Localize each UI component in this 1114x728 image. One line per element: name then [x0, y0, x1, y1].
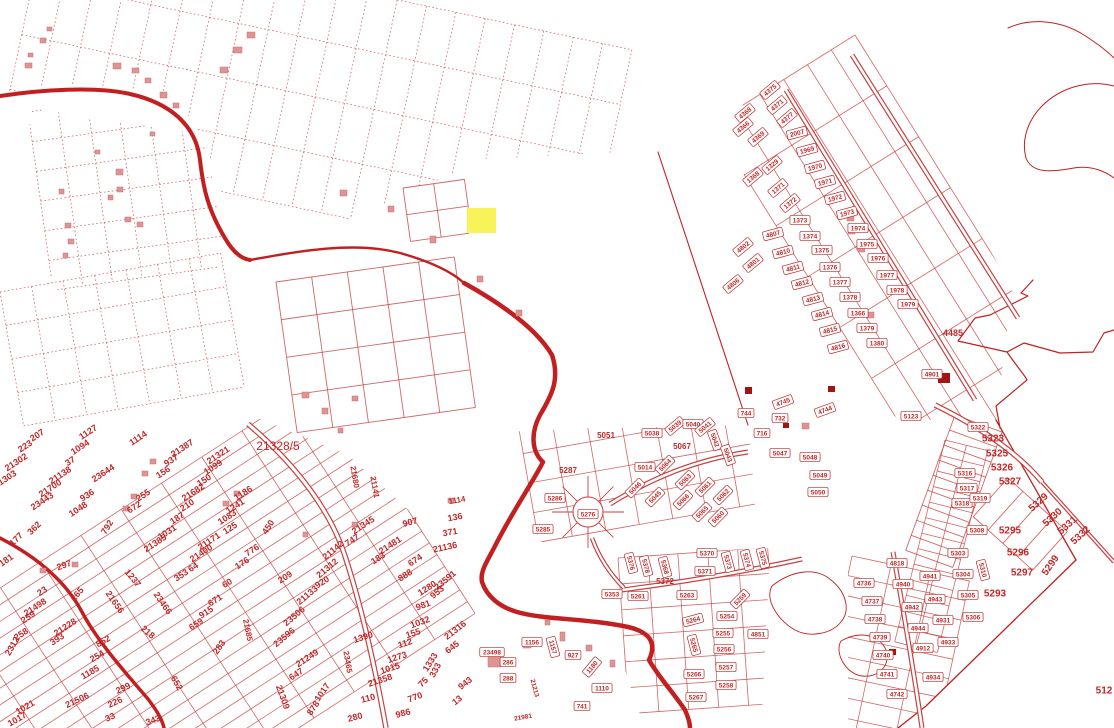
parcel-number: 5038 [645, 430, 660, 437]
cadastral-map[interactable]: 21328/5207223213022130311271094372113821… [0, 0, 1114, 728]
parcel-label-boxed: 1379 [857, 323, 877, 332]
parcel-number: 5372 [656, 577, 674, 586]
parcel-number: 5287 [559, 466, 577, 475]
parcel-number: 21249 [294, 647, 320, 669]
parcel-label-boxed: 1373 [790, 215, 810, 224]
building [338, 428, 343, 433]
parcel-number: 226 [106, 694, 124, 709]
parcel-label: 652 [169, 674, 185, 692]
parcel-label-boxed: 4912 [913, 643, 933, 652]
parcel-number: 288 [503, 675, 514, 682]
parcel-label-boxed: 927 [565, 650, 581, 659]
building [783, 423, 789, 428]
parcel-label: 254 [88, 648, 106, 664]
building [117, 187, 123, 192]
parcel-label: 23596 [271, 625, 297, 649]
parcel-number: 4931 [936, 617, 951, 624]
building [745, 387, 752, 394]
parcel-number: 181 [0, 552, 15, 569]
parcel-number: 1376 [823, 264, 838, 271]
parcel-label-boxed: 1371 [767, 178, 788, 198]
parcel-label: 1114 [448, 494, 467, 506]
parcel-label-boxed: 4807 [762, 227, 784, 241]
parcel-number: 23465 [341, 650, 354, 674]
parcel-label-boxed: 5047 [770, 448, 790, 457]
parcel-label: 5296 [1007, 548, 1030, 559]
parcel-number: 5285 [536, 526, 551, 533]
parcel-label-boxed: 5062 [713, 485, 734, 506]
parcel-number: 21506 [64, 690, 91, 710]
parcel-label-boxed: 4741 [877, 669, 897, 678]
parcel-number: 716 [757, 430, 768, 437]
parcel-label-boxed: 1977 [877, 270, 897, 279]
parcel-label-boxed: 4943 [925, 594, 945, 603]
parcel-label-boxed: 5376 [624, 552, 638, 574]
parcel-label-boxed: 5286 [545, 493, 565, 502]
parcel-label-boxed: 5266 [684, 669, 704, 678]
parcel-label: 747 [343, 532, 361, 549]
parcel-number: 297 [55, 558, 73, 573]
parcel-label-boxed: 4851 [748, 629, 768, 638]
parcel-label-boxed: 5264 [682, 613, 704, 627]
parcel-label: 4485 [943, 328, 963, 338]
parcel-label-boxed: 5319 [970, 493, 990, 502]
parcel-label-boxed: 5049 [810, 470, 830, 479]
parcel-number: 5322 [971, 424, 986, 431]
parcel-number: 21981 [514, 713, 533, 723]
parcel-number: 741 [577, 703, 588, 710]
building [322, 408, 328, 414]
parcel-label: 283 [211, 638, 228, 656]
parcel-label-boxed: 732 [772, 413, 788, 422]
building [802, 423, 809, 429]
parcel-number: 5296 [1007, 548, 1030, 559]
parcel-label-boxed: 5038 [642, 428, 662, 437]
building [828, 386, 835, 392]
parcel-label-boxed: 1377 [830, 277, 850, 286]
parcel-number: 943 [456, 675, 474, 692]
parcel-number: 732 [775, 415, 786, 422]
building [125, 217, 131, 222]
building [150, 132, 155, 136]
parcel-label: 5295 [999, 526, 1022, 537]
parcel-number: 888 [396, 567, 414, 584]
parcel-number: 5014 [638, 464, 653, 471]
parcel-label: 1048 [67, 499, 89, 518]
parcel-label-boxed: 4806 [722, 274, 743, 294]
parcel-number: 5304 [956, 571, 971, 578]
road [592, 538, 624, 588]
terrain-boundary [250, 247, 464, 283]
parcel-label-boxed: 1978 [887, 285, 907, 294]
parcel-label-boxed: 5048 [800, 452, 820, 461]
parcel-number: 1379 [860, 325, 875, 332]
parcel-number: 647 [287, 666, 305, 683]
parcel-number: 986 [394, 706, 411, 720]
parcel-label-boxed: 5265 [687, 634, 701, 656]
parcel-number: 1114 [448, 494, 467, 506]
parcel-number: 362 [25, 519, 43, 537]
parcel-label-boxed: 4744 [814, 402, 836, 417]
parcel-number: 286 [503, 659, 514, 666]
parcel-number: 5327 [999, 477, 1022, 488]
parcel-label: 1127 [77, 423, 99, 442]
parcel-number: 1048 [67, 499, 89, 518]
parcel-label: 1017 [312, 681, 332, 703]
parcel-number: 5286 [548, 495, 563, 502]
parcel-number: 792 [99, 518, 115, 536]
building [477, 276, 483, 282]
parcel-number: 5317 [960, 485, 975, 492]
parcel-number: 4738 [868, 616, 883, 623]
parcel-grid [276, 257, 475, 433]
parcel-label: 297 [55, 558, 73, 573]
parcel-label: 512 [1096, 686, 1113, 697]
parcel-label-boxed: 5261 [628, 591, 648, 600]
building [220, 67, 228, 73]
parcel-label-boxed: 4812 [791, 276, 813, 290]
parcel-number: 5305 [961, 592, 976, 599]
river-boundary [0, 90, 250, 260]
parcel-label: 5067 [673, 442, 691, 451]
parcel-number: 1156 [525, 639, 539, 646]
parcel-label-boxed: 1157 [546, 636, 560, 658]
parcel-grid [713, 35, 1078, 480]
parcel-number: 23644 [90, 462, 116, 484]
parcel-number: 5318 [955, 500, 970, 507]
parcel-number: 5326 [991, 463, 1014, 474]
parcel-label: 21316 [442, 618, 468, 641]
parcel-number: 21303 [0, 468, 18, 490]
parcel-number: 652 [169, 674, 185, 692]
building [40, 568, 46, 573]
building [132, 68, 139, 73]
parcel-label-boxed: 5061 [695, 477, 716, 498]
parcel-label-boxed: 1366 [848, 308, 868, 317]
parcel-label-boxed: 5322 [968, 422, 988, 431]
parcel-number: 4944 [911, 625, 926, 632]
parcel-label-boxed: 286 [500, 657, 516, 666]
parcel-label: 23506 [281, 604, 307, 628]
parcel-label-boxed: 1374 [800, 231, 820, 240]
parcel-label: 792 [99, 518, 115, 536]
parcel-number: 280 [346, 710, 363, 724]
parcel-number: 5255 [716, 630, 731, 637]
parcel-number: 21328/5 [256, 439, 300, 453]
parcel-label: 207 [28, 427, 46, 444]
parcel-label: 674 [406, 552, 424, 569]
parcel-label-boxed: 4818 [887, 558, 907, 567]
parcel-label: 21302 [3, 451, 29, 473]
building [586, 645, 592, 651]
building [340, 190, 347, 196]
building [560, 632, 565, 641]
parcel-number: 1979 [901, 301, 916, 308]
parcel-label-boxed: 4944 [908, 623, 928, 632]
parcel-label-boxed: 4802 [732, 237, 753, 257]
parcel-number: 5257 [719, 664, 734, 671]
parcel-number: 4901 [925, 371, 940, 378]
parcel-number: 5353 [605, 591, 620, 598]
parcel-label-boxed: 1375 [812, 245, 832, 254]
parcel-number: 4934 [926, 674, 941, 681]
parcel-number: 4912 [916, 645, 931, 652]
parcel-number: 1378 [843, 294, 858, 301]
parcel-label: 943 [456, 675, 474, 692]
parcel-label: 13 [450, 693, 464, 707]
parcel-label: 371 [442, 526, 459, 538]
building [160, 92, 167, 98]
parcel-number: 5048 [803, 454, 818, 461]
parcel-label-boxed: 5316 [955, 468, 975, 477]
parcel-number: 343 [144, 713, 162, 728]
parcel-number: 21302 [3, 451, 29, 473]
parcel-number: 1377 [833, 279, 848, 286]
parcel-number: 21316 [442, 618, 468, 641]
parcel-label: 21328/5 [256, 439, 300, 453]
parcel-number: 5254 [720, 613, 735, 620]
parcel-number: 1127 [77, 423, 99, 442]
parcel-number: 927 [568, 652, 579, 659]
parcel-label-boxed: 5259 [730, 589, 751, 610]
parcel-label: 181 [0, 552, 15, 569]
terrain-boundary [996, 352, 1027, 428]
highlighted-parcel[interactable] [467, 208, 496, 233]
parcel-label-boxed: 5368 [658, 556, 672, 578]
parcel-number: 5303 [951, 550, 966, 557]
parcel-label-boxed: 1976 [868, 253, 888, 262]
parcel-grid [0, 253, 244, 426]
parcel-number: 21309 [274, 684, 292, 711]
parcel-label-boxed: 1372 [779, 193, 800, 213]
building [116, 169, 123, 175]
building [142, 471, 148, 476]
parcel-number: 4742 [890, 691, 905, 698]
parcel-label-boxed: 4740 [873, 650, 893, 659]
parcel-number: 75 [416, 675, 430, 689]
parcel-number: 1375 [815, 247, 830, 254]
parcel-label-boxed: 5371 [695, 566, 715, 575]
parcel-number: 5049 [813, 472, 828, 479]
parcel-label: 21680 [348, 465, 361, 489]
parcel-label-boxed: 1969 [796, 143, 818, 157]
parcel-label-boxed: 1971 [814, 175, 836, 189]
parcel-number: 5050 [811, 489, 826, 496]
parcel-number: 23506 [281, 604, 307, 628]
parcel-label-boxed: 5304 [953, 569, 973, 578]
parcel-label: 112 [397, 636, 414, 650]
parcel-number: 1237 [123, 567, 144, 589]
parcel-number: 4933 [941, 639, 956, 646]
building [233, 47, 242, 53]
parcel-number: 4485 [943, 328, 963, 338]
parcel-grid [0, 379, 475, 728]
parcel-label: 450 [260, 518, 276, 536]
parcel-number: 1366 [851, 310, 866, 317]
parcel-label-boxed: 5263 [677, 590, 697, 599]
parcel-label-boxed: 5318 [952, 498, 972, 507]
building [68, 239, 74, 244]
parcel-number: 21133 [294, 583, 319, 606]
parcel-label-boxed: 5258 [716, 680, 736, 689]
parcel-number: 5051 [597, 431, 615, 440]
parcel-number: 1373 [793, 217, 808, 224]
parcel-number: 5295 [999, 526, 1022, 537]
parcel-number: 5067 [673, 442, 691, 451]
parcel-label: 136 [447, 511, 464, 523]
parcel-number: 5293 [984, 589, 1007, 600]
terrain-boundary [996, 420, 1076, 560]
parcel-label-boxed: 5050 [808, 487, 828, 496]
parcel-label-boxed: 5308 [967, 525, 987, 534]
parcel-label-boxed: 5045 [645, 487, 666, 508]
parcel-number: 1374 [803, 233, 818, 240]
parcel-label-boxed: 5370 [697, 548, 717, 557]
parcel-label: 907 [401, 515, 418, 529]
parcel-label-boxed: 4737 [862, 596, 882, 605]
parcel-label-boxed: 5285 [533, 524, 553, 533]
parcel-label-boxed: 4940 [893, 579, 913, 588]
terrain-boundary [770, 572, 846, 634]
building [65, 223, 71, 228]
parcel-number: 5276 [581, 511, 596, 518]
parcel-number: 1974 [851, 225, 866, 232]
parcel-number: 5261 [631, 593, 646, 600]
parcel-label: 33 [103, 710, 116, 723]
parcel-label-boxed: 1970 [804, 160, 826, 174]
parcel-label-boxed: 5123 [901, 411, 921, 420]
parcel-label-boxed: 4742 [887, 689, 907, 698]
parcel-number: 1976 [871, 255, 886, 262]
parcel-label: 362 [25, 519, 43, 537]
building [113, 63, 121, 69]
parcel-label-boxed: 5374 [740, 549, 754, 571]
parcel-label-boxed: 5317 [957, 483, 977, 492]
parcel-label: 5326 [991, 463, 1014, 474]
parcel-number: 5263 [680, 592, 695, 599]
parcel-label: 21133 [294, 583, 319, 606]
parcel-number: 5123 [904, 413, 919, 420]
parcel-grid [403, 179, 472, 241]
parcel-label-boxed: 4815 [819, 323, 841, 337]
parcel-number: 5308 [970, 527, 985, 534]
parcel-number: 1114 [127, 429, 148, 448]
parcel-label: 770 [406, 690, 424, 705]
parcel-number: 5256 [717, 646, 732, 653]
parcel-label-boxed: 4901 [922, 369, 942, 378]
parcel-label-boxed: 1180 [582, 656, 602, 677]
parcel-number: 5323 [982, 434, 1005, 445]
parcel-label-boxed: 288 [500, 673, 516, 682]
parcel-label-boxed: 4942 [902, 602, 922, 611]
parcel-label-boxed: 4810 [772, 245, 794, 259]
parcel-label-boxed: 741 [574, 701, 590, 710]
parcel-label-boxed: 4739 [870, 632, 890, 641]
parcel-label: 64 [186, 560, 200, 574]
parcel-number: 5370 [700, 550, 715, 557]
parcel-label-boxed: 1972 [824, 191, 846, 205]
parcel-number: 770 [406, 690, 424, 705]
building [430, 236, 436, 243]
parcel-number: 4736 [857, 580, 872, 587]
parcel-label-boxed: 1973 [836, 206, 858, 220]
parcel-label-boxed: 4375 [759, 80, 780, 100]
parcel-number: 5267 [689, 694, 704, 701]
parcel-label-boxed: 4745 [772, 394, 794, 409]
building [545, 620, 550, 625]
terrain-boundary [1008, 22, 1114, 58]
parcel-label-boxed: 4814 [811, 307, 833, 321]
parcel-label: 21141 [368, 476, 381, 500]
parcel-number: 207 [28, 427, 46, 444]
parcel-number: 5325 [986, 449, 1009, 460]
parcel-label-boxed: 5303 [948, 548, 968, 557]
parcel-label-boxed: 4931 [933, 615, 953, 624]
building [516, 310, 522, 316]
parcel-label: 299 [114, 680, 132, 695]
parcel-number: 21213 [529, 679, 541, 699]
parcel-label-boxed: 1156 [522, 637, 542, 646]
parcel-number: 5306 [966, 614, 981, 621]
parcel-number: 907 [401, 515, 418, 529]
parcel-label: 5293 [984, 589, 1007, 600]
parcel-label: 1237 [123, 567, 144, 589]
parcel-number: 4943 [928, 596, 943, 603]
parcel-label: 226 [106, 694, 124, 709]
parcel-number: 674 [406, 552, 424, 569]
building [247, 32, 255, 38]
map-viewport[interactable]: 21328/5207223213022130311271094372113821… [0, 0, 1114, 728]
parcel-number: 4941 [923, 573, 938, 580]
parcel-label-boxed: 2007 [786, 126, 808, 140]
parcel-label-boxed: 5257 [716, 662, 736, 671]
parcel-label-boxed: 5256 [714, 644, 734, 653]
parcel-label-boxed: 5255 [713, 628, 733, 637]
parcel-number: 4741 [880, 671, 895, 678]
parcel-number: 371 [442, 526, 459, 538]
building [352, 396, 358, 401]
parcel-label: 23465 [341, 650, 354, 674]
parcel-number: 4940 [896, 581, 911, 588]
parcel-number: 64 [186, 560, 200, 574]
building [388, 206, 394, 212]
parcel-label-boxed: 1110 [592, 683, 612, 692]
unparcelled-area [468, 150, 748, 428]
parcel-label: 21249 [294, 647, 320, 669]
parcel-label-boxed: 1975 [857, 239, 877, 248]
parcel-label: 209 [276, 569, 294, 586]
parcel-label-boxed: 5254 [717, 611, 737, 620]
parcel-label: 280 [346, 710, 363, 724]
parcel-label: 21385 [142, 532, 168, 554]
parcel-label: 5327 [999, 477, 1022, 488]
parcel-label-boxed: 5378 [639, 555, 653, 577]
parcel-number: 4737 [865, 598, 880, 605]
parcel-label: 343 [144, 713, 162, 728]
parcel-number: 5316 [958, 470, 973, 477]
parcel-number: 21680 [348, 465, 361, 489]
parcel-label: 110 [360, 691, 377, 704]
parcel-label: 986 [394, 706, 411, 720]
building [95, 150, 100, 154]
parcel-label: 5372 [656, 577, 674, 586]
parcel-number: 4942 [905, 604, 920, 611]
parcel-number: 5299 [1040, 553, 1062, 578]
parcel-label-boxed: 716 [754, 428, 770, 437]
parcel-number: 744 [741, 410, 752, 417]
parcel-label: 75 [416, 675, 430, 689]
building [63, 253, 68, 258]
